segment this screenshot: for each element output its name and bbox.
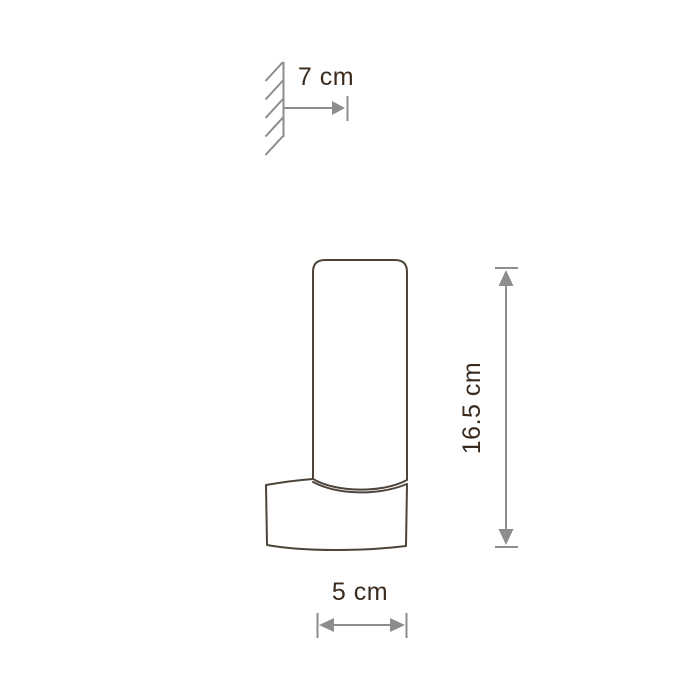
height-label: 16.5 cm	[458, 362, 486, 454]
lamp-dimension-drawing: 7 cm 16.5 cm 5 cm	[0, 0, 700, 700]
width-label: 5 cm	[332, 578, 388, 606]
dimension-diagram: 7 cm 16.5 cm 5 cm	[0, 0, 700, 700]
lamp-base-seam	[313, 482, 407, 492]
arrow-up-icon	[499, 270, 514, 286]
wall-symbol	[266, 62, 284, 155]
lamp-shade-outline	[313, 260, 407, 490]
arrow-left-icon	[319, 618, 334, 632]
arrow-right-icon	[332, 101, 345, 115]
wall-hatching-icon	[266, 62, 284, 155]
lamp-drawing	[266, 260, 407, 550]
depth-dimension: 7 cm	[284, 63, 354, 121]
height-dimension: 16.5 cm	[458, 268, 518, 547]
arrow-right-icon	[390, 618, 405, 632]
depth-label: 7 cm	[298, 63, 354, 91]
arrow-down-icon	[499, 529, 514, 545]
width-dimension: 5 cm	[318, 578, 407, 638]
